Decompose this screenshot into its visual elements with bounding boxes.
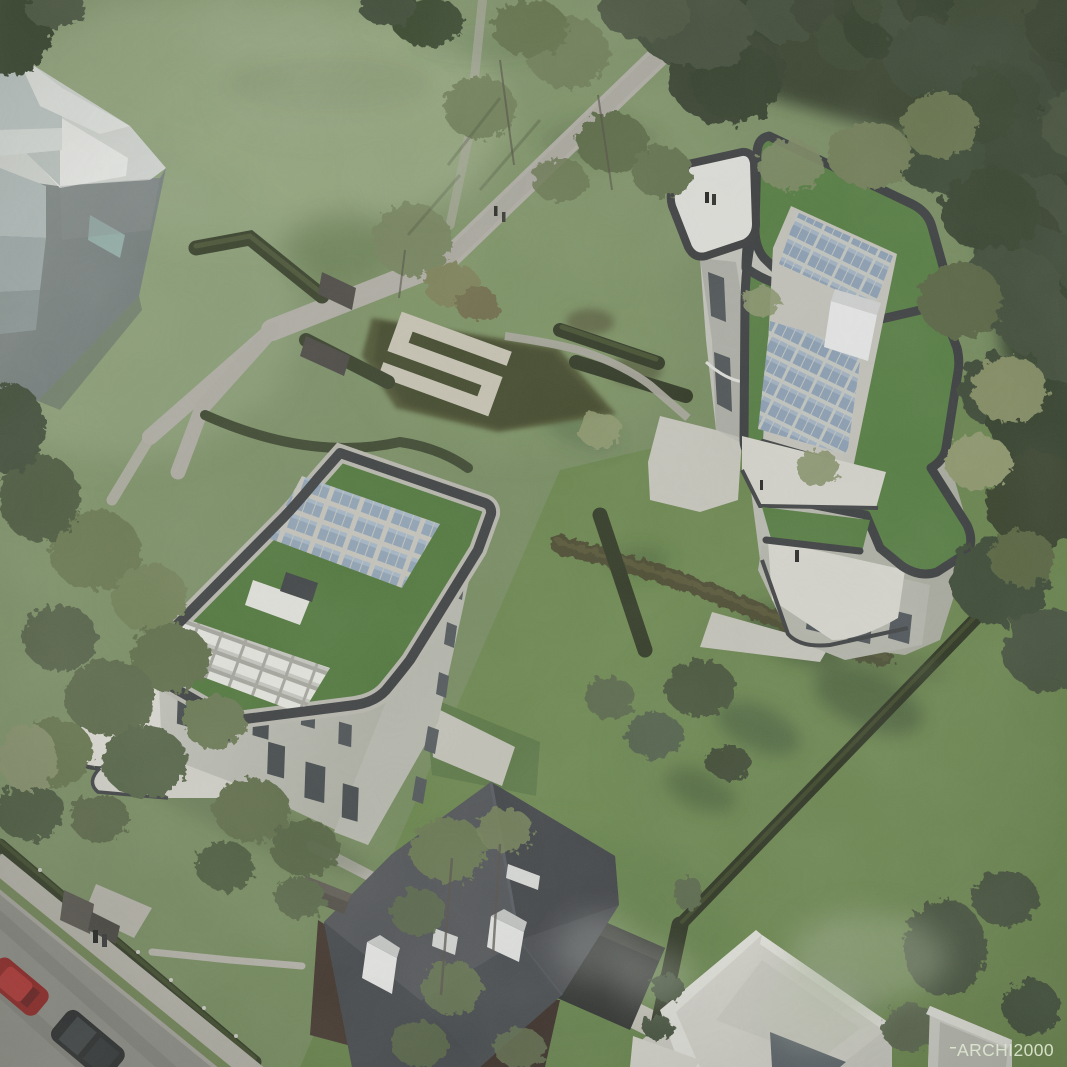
svg-text:ARCHI2000: ARCHI2000 — [957, 1040, 1054, 1060]
